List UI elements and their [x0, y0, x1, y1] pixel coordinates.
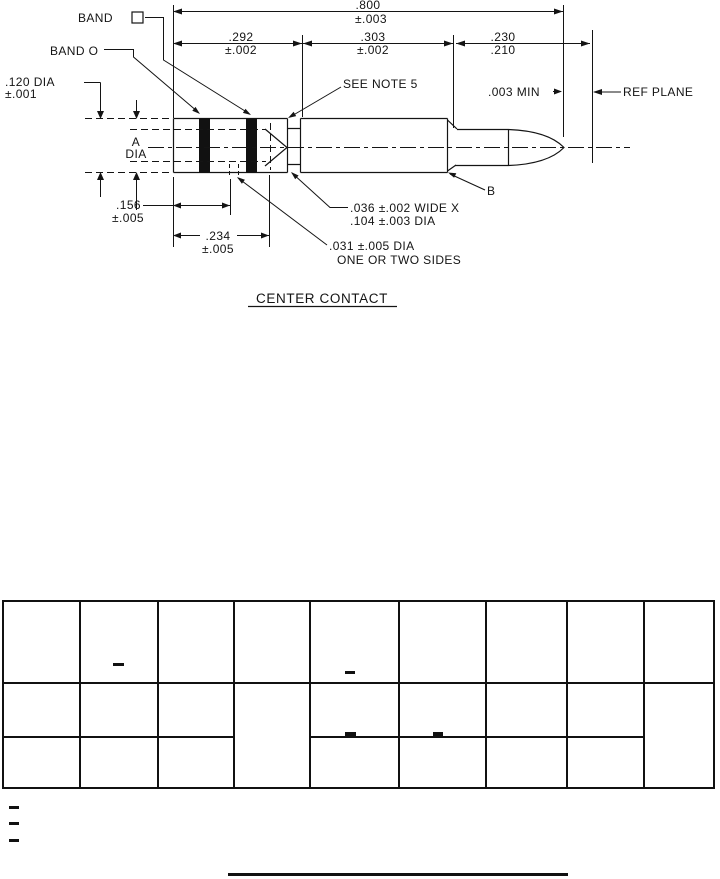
dim-seg3-max: .230 [491, 30, 516, 44]
dim-seg2-value: .303 [361, 30, 386, 44]
point-b-label: B [487, 184, 495, 198]
dim-seg1-value: .292 [229, 30, 254, 44]
dim-overall-tol: ±.003 [355, 12, 387, 26]
table-dash-row1-col5 [345, 671, 355, 674]
footnote-dash-3 [9, 839, 19, 842]
band-square-symbol-icon [132, 12, 143, 23]
spec-table [2, 600, 715, 789]
hole-callout-line2: ONE OR TWO SIDES [337, 253, 461, 267]
band-1 [199, 118, 210, 173]
dim-overall-value: .800 [356, 0, 381, 12]
table-col-line-8 [643, 602, 645, 787]
band2-label: BAND O [50, 44, 98, 58]
dim-seg1-tol: ±.002 [225, 43, 257, 57]
a-dia-line2: DIA [125, 147, 146, 161]
contact-groove [288, 119, 301, 173]
table-col-line-1 [79, 602, 81, 787]
footnote-dash-2 [9, 822, 19, 825]
groove-callout-line1: .036 ±.002 WIDE X [350, 201, 459, 215]
dim-seg3-min: .210 [491, 43, 516, 57]
table-col-line-3 [233, 602, 235, 787]
hole-callout-line1: .031 ±.005 DIA [329, 239, 415, 253]
dim-234-tol: ±.005 [202, 242, 234, 256]
table-row-line-2a [4, 736, 233, 738]
see-note-label: SEE NOTE 5 [343, 77, 418, 91]
ref-plane-label: REF PLANE [623, 85, 693, 99]
band1-label: BAND [78, 11, 113, 25]
dim-156-tol: ±.005 [112, 211, 144, 225]
dim-156-value: .156 [116, 198, 141, 212]
dia120-tol: ±.001 [5, 87, 37, 101]
table-row-line-2b [309, 736, 643, 738]
table-dash-row2-col6 [433, 732, 443, 736]
dim-234-value: .234 [206, 229, 231, 243]
groove-callout-line2: .104 ±.003 DIA [350, 214, 436, 228]
document-page: BAND BAND O .120 DIA ±.001 .800 ±.003 .2… [0, 0, 720, 879]
figure-title: CENTER CONTACT [256, 291, 388, 306]
table-col-line-6 [485, 602, 487, 787]
band-2 [246, 118, 257, 173]
identification-bands [199, 118, 257, 173]
table-col-line-7 [566, 602, 568, 787]
bottom-rule [228, 873, 568, 876]
footnote-dash-1 [9, 806, 19, 809]
hidden-lines [85, 119, 271, 179]
table-dash-row2-col5 [345, 732, 356, 736]
table-col-line-2 [157, 602, 159, 787]
dim-seg2-tol: ±.002 [357, 43, 389, 57]
center-contact-drawing: BAND BAND O .120 DIA ±.001 .800 ±.003 .2… [0, 0, 720, 330]
min-gap-label: .003 MIN [488, 85, 540, 99]
table-col-line-5 [398, 602, 400, 787]
table-dash-row1-col2 [113, 663, 124, 666]
table-col-line-4 [309, 602, 311, 787]
center-contact-outline [174, 119, 565, 173]
table-row-line-1 [4, 682, 713, 684]
